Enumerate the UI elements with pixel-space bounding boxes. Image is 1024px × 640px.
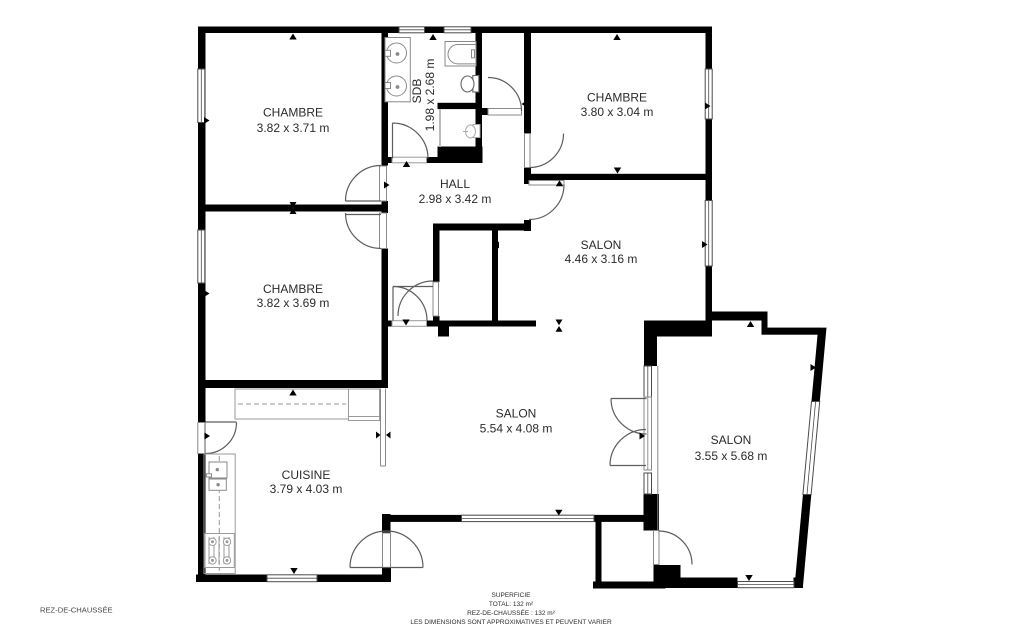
svg-text:HALL: HALL — [440, 177, 470, 191]
svg-text:3.79 x 4.03 m: 3.79 x 4.03 m — [270, 482, 343, 496]
svg-text:SALON: SALON — [711, 433, 752, 447]
svg-text:1.98 x 2.68 m: 1.98 x 2.68 m — [423, 59, 437, 132]
svg-text:SDB: SDB — [410, 79, 424, 104]
svg-text:SALON: SALON — [581, 238, 622, 252]
svg-text:TOTAL: 132 m²: TOTAL: 132 m² — [489, 601, 534, 608]
svg-text:CHAMBRE: CHAMBRE — [263, 282, 323, 296]
svg-text:3.82 x 3.71 m: 3.82 x 3.71 m — [257, 121, 330, 135]
svg-text:LES DIMENSIONS SONT APPROXIMAT: LES DIMENSIONS SONT APPROXIMATIVES ET PE… — [410, 619, 612, 626]
svg-text:3.82 x 3.69 m: 3.82 x 3.69 m — [257, 296, 330, 310]
svg-text:CHAMBRE: CHAMBRE — [263, 106, 323, 120]
svg-text:3.55 x 5.68 m: 3.55 x 5.68 m — [695, 449, 768, 463]
svg-text:CUISINE: CUISINE — [282, 468, 331, 482]
svg-text:SALON: SALON — [496, 407, 537, 421]
svg-text:3.80 x 3.04 m: 3.80 x 3.04 m — [581, 105, 654, 119]
svg-text:5.54 x 4.08 m: 5.54 x 4.08 m — [480, 422, 553, 436]
svg-text:REZ-DE-CHAUSSÉE: REZ-DE-CHAUSSÉE — [40, 606, 113, 615]
svg-text:4.46 x 3.16 m: 4.46 x 3.16 m — [565, 252, 638, 266]
svg-text:REZ-DE-CHAUSSÉE : 132 m²: REZ-DE-CHAUSSÉE : 132 m² — [467, 608, 556, 617]
svg-text:CHAMBRE: CHAMBRE — [587, 91, 647, 105]
svg-text:SUPERFICIE: SUPERFICIE — [491, 592, 531, 599]
svg-text:2.98 x 3.42 m: 2.98 x 3.42 m — [419, 192, 492, 206]
